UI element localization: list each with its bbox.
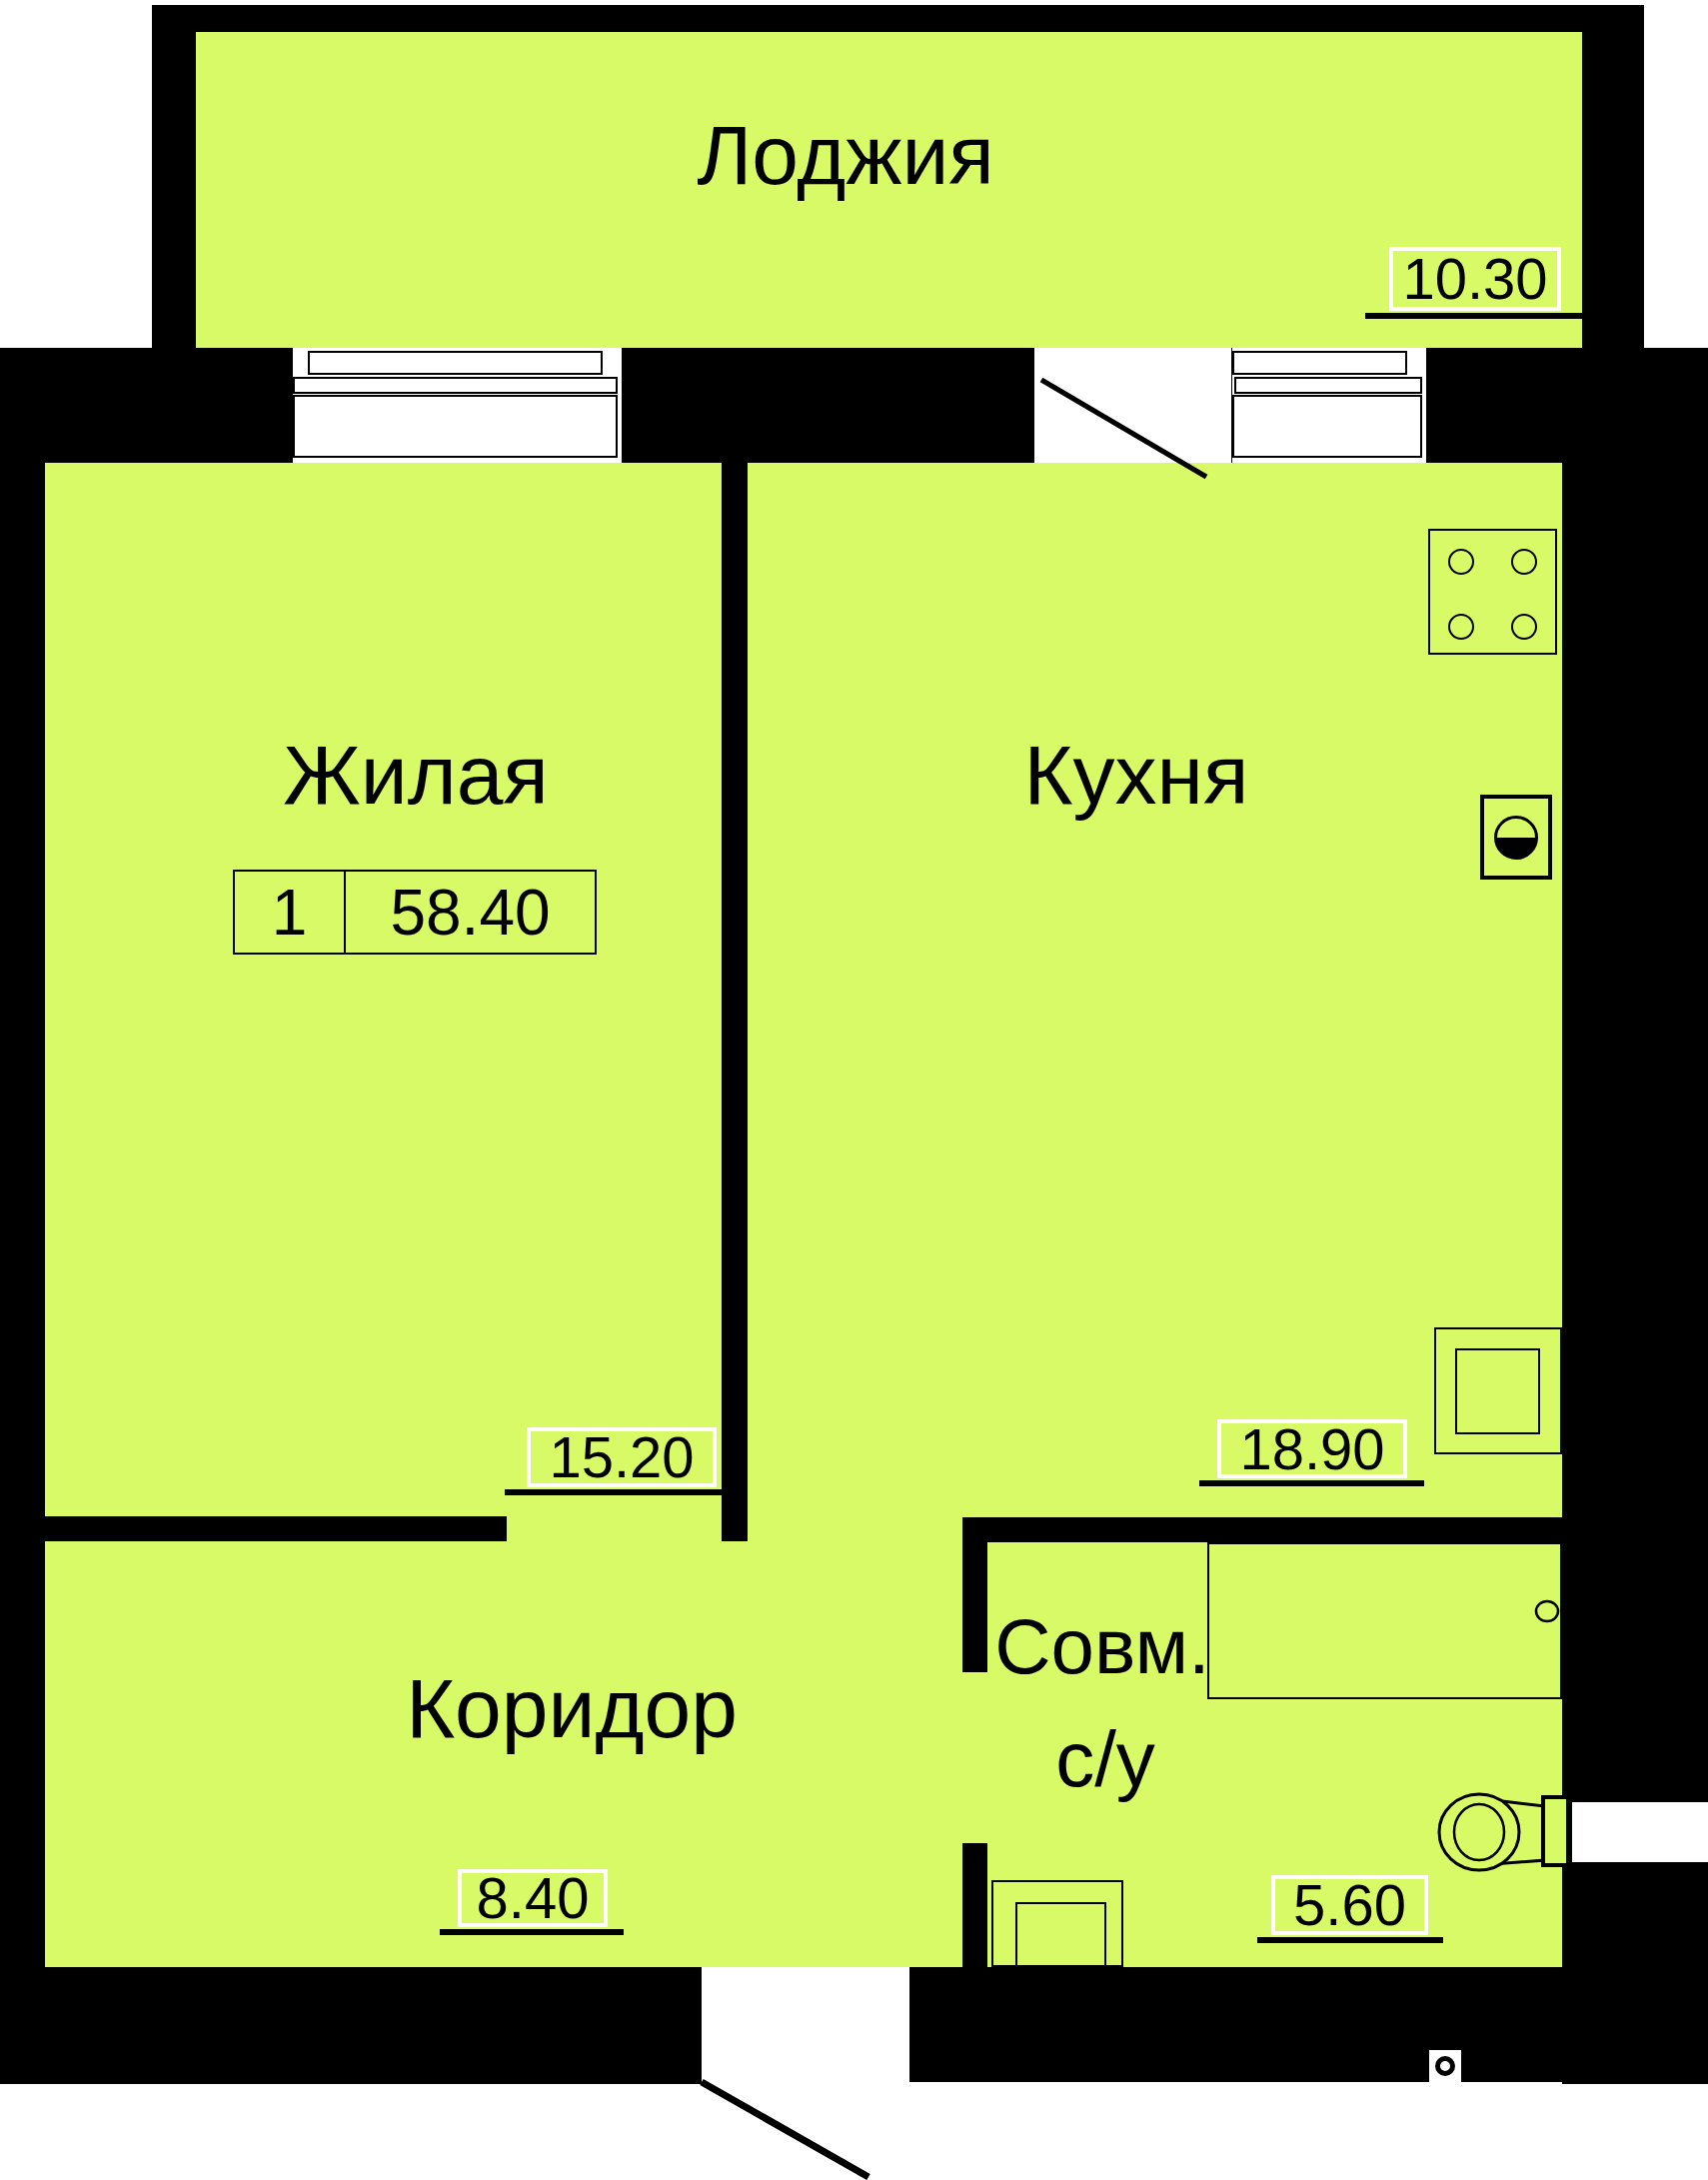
window-icon [308, 351, 603, 375]
entrance-door-swing-icon [702, 2082, 868, 2177]
peephole-icon [1429, 2050, 1461, 2082]
wall-loggia-top [152, 5, 1644, 32]
wall-living-bottom [45, 1516, 507, 1541]
floor-plan: Лоджия Жилая Кухня Коридор Совм. с/у 1 5… [0, 0, 1708, 2180]
stove-burner-icon [1448, 614, 1474, 640]
stove-burner-icon [1511, 614, 1537, 640]
area-underline [1365, 313, 1609, 319]
window-icon [1232, 395, 1422, 458]
wall-niche-toilet [1572, 1802, 1708, 1862]
area-value-bathroom: 5.60 [1271, 1875, 1428, 1935]
window-icon [1232, 351, 1407, 375]
room-label-bathroom-line2: с/у [1055, 1720, 1155, 1798]
area-underline [505, 1489, 733, 1495]
wall-bottom-left [0, 1967, 702, 2084]
wall-bathroom-top [987, 1517, 1562, 1542]
kitchen-sink-basin-icon [1455, 1348, 1540, 1434]
room-label-living: Жилая [283, 733, 549, 817]
window-icon [293, 377, 618, 394]
unit-total-area: 58.40 [346, 872, 595, 953]
stove-burner-icon [1448, 549, 1474, 575]
washer-drum-icon [1494, 816, 1538, 860]
area-underline [440, 1929, 624, 1935]
unit-rooms-count: 1 [235, 872, 346, 953]
wall-bathroom-left-upper [962, 1517, 987, 1672]
room-label-loggia: Лоджия [697, 113, 994, 197]
window-icon [293, 395, 618, 458]
wall-left [0, 348, 45, 2084]
area-value-loggia: 10.30 [1389, 247, 1561, 311]
room-label-kitchen: Кухня [1024, 733, 1249, 817]
area-value-corridor: 8.40 [458, 1869, 608, 1927]
area-underline [1199, 1480, 1424, 1486]
wall-living-kitchen-divider [722, 463, 748, 1541]
window-icon [1234, 377, 1422, 394]
washing-machine-icon [1480, 795, 1552, 880]
area-underline [1257, 1937, 1443, 1943]
area-value-living: 15.20 [527, 1427, 717, 1487]
peephole-circle [1435, 2056, 1455, 2076]
room-label-corridor: Коридор [406, 1666, 738, 1750]
apartment-floor [45, 463, 1562, 1967]
bathroom-sink-basin-icon [1015, 1902, 1106, 1967]
door-opening-entrance [702, 1967, 909, 2084]
area-value-kitchen: 18.90 [1217, 1419, 1407, 1478]
wall-bathroom-left-lower [962, 1843, 987, 1967]
wall-loggia-left [152, 5, 196, 348]
stove-burner-icon [1511, 549, 1537, 575]
bathtub-icon [1207, 1542, 1562, 1699]
stove-icon [1428, 529, 1557, 655]
door-opening-loggia [1034, 348, 1231, 463]
room-label-bathroom-line1: Совм. [994, 1607, 1210, 1685]
unit-info-badge: 1 58.40 [233, 870, 597, 955]
wall-bottom-right [909, 1967, 1708, 2082]
wall-loggia-right [1582, 5, 1644, 348]
